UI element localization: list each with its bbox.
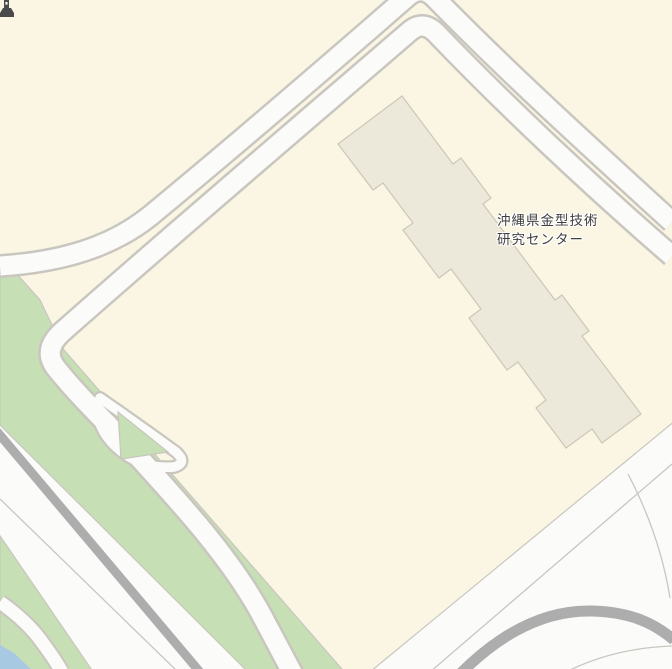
map-canvas[interactable]: 沖縄県金型技術 研究センター — [0, 0, 672, 669]
poi-label[interactable]: 沖縄県金型技術 研究センター — [497, 212, 627, 249]
map-tiles — [0, 0, 672, 669]
poi-label-line1: 沖縄県金型技術 — [497, 212, 627, 231]
poi-label-line2: 研究センター — [497, 231, 627, 250]
factory-building-icon[interactable] — [0, 0, 14, 17]
